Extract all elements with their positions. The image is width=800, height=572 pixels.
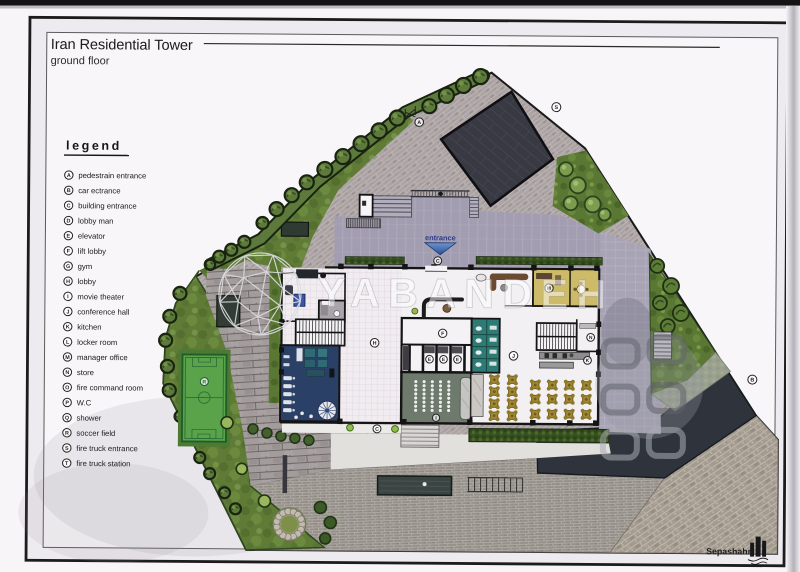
svg-text:D: D: [67, 218, 71, 224]
svg-text:gym: gym: [78, 262, 93, 271]
svg-text:manager office: manager office: [77, 353, 128, 362]
svg-text:elevator: elevator: [78, 232, 106, 241]
svg-text:conference hall: conference hall: [77, 307, 129, 316]
svg-text:lift lobby: lift lobby: [78, 247, 106, 256]
svg-text:car ectrance: car ectrance: [78, 186, 120, 195]
svg-text:K: K: [586, 358, 590, 364]
svg-text:B: B: [750, 377, 754, 383]
svg-text:N: N: [65, 370, 69, 376]
svg-text:fire truck station: fire truck station: [76, 459, 130, 468]
svg-text:C: C: [67, 203, 71, 209]
svg-text:shower: shower: [77, 414, 102, 423]
svg-text:legend: legend: [66, 139, 122, 153]
svg-text:R: R: [202, 379, 206, 385]
svg-text:YABANDEH: YABANDEH: [318, 269, 615, 317]
svg-text:Q: Q: [65, 416, 69, 422]
svg-text:building entrance: building entrance: [78, 201, 137, 210]
svg-text:H: H: [373, 341, 377, 347]
svg-text:C: C: [375, 427, 379, 433]
svg-text:Iran Residential Tower: Iran Residential Tower: [51, 37, 193, 54]
svg-text:store: store: [77, 368, 94, 377]
svg-text:lobby man: lobby man: [78, 216, 114, 225]
svg-text:R: R: [65, 431, 69, 437]
svg-text:O: O: [65, 385, 69, 391]
svg-text:pedestrain entrance: pedestrain entrance: [78, 171, 146, 180]
svg-text:kitchen: kitchen: [77, 323, 101, 332]
svg-text:J: J: [66, 309, 69, 315]
svg-text:A: A: [67, 173, 71, 179]
svg-text:C: C: [436, 259, 440, 265]
svg-text:fire command room: fire command room: [77, 383, 143, 392]
svg-text:J: J: [512, 354, 515, 360]
svg-text:A: A: [417, 120, 421, 126]
svg-text:Sepashahr: Sepashahr: [706, 546, 752, 556]
svg-text:N: N: [589, 335, 593, 341]
svg-text:lobby: lobby: [78, 277, 97, 286]
svg-text:movie theater: movie theater: [77, 292, 124, 301]
svg-text:fire truck entrance: fire truck entrance: [76, 444, 138, 453]
svg-text:K: K: [66, 325, 70, 331]
svg-text:S: S: [555, 105, 559, 111]
svg-text:G: G: [66, 264, 70, 270]
svg-text:ground floor: ground floor: [51, 55, 110, 67]
svg-text:W.C: W.C: [77, 398, 92, 407]
svg-text:locker room: locker room: [77, 338, 117, 347]
svg-text:H: H: [66, 279, 70, 285]
svg-text:B: B: [67, 188, 71, 194]
svg-text:S: S: [65, 446, 69, 452]
svg-text:soccer field: soccer field: [76, 429, 115, 438]
svg-text:E: E: [67, 234, 71, 240]
svg-text:P: P: [65, 400, 69, 406]
svg-text:F: F: [441, 331, 444, 337]
svg-text:M: M: [65, 355, 70, 361]
svg-text:entrance: entrance: [425, 233, 456, 242]
